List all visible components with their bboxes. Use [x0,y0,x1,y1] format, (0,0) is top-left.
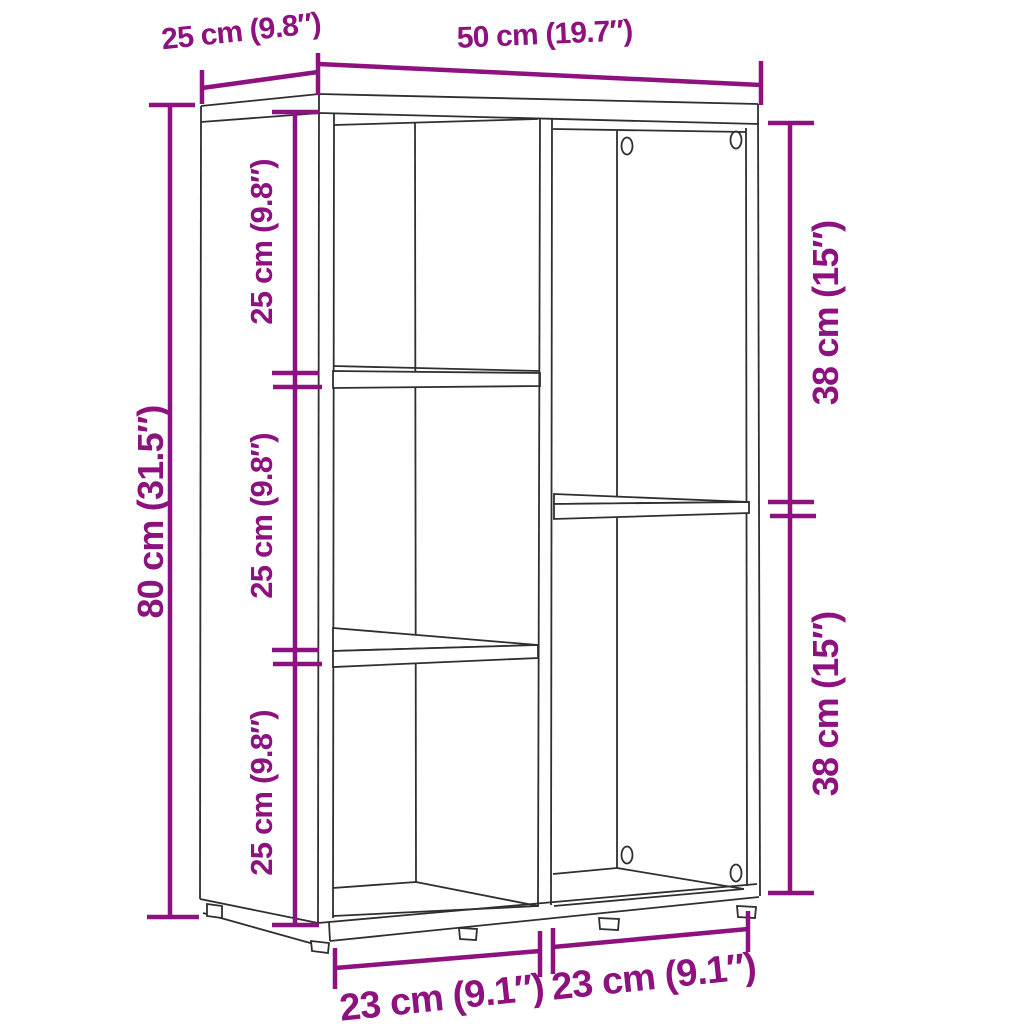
cabinet-drawing [200,94,760,953]
left-stile-inner-edge [333,114,334,918]
cam-hole [622,847,633,864]
foot [599,918,619,930]
bottom-width-label-right: 23 cm (9.1″) [550,945,758,1008]
front-right-vertical [758,104,760,896]
top-band-left [201,113,320,122]
right-section-label-2: 38 cm (15″) [805,612,846,797]
cam-hole [731,132,742,149]
bottom-corner-closure [329,922,330,941]
left-section-label-1: 25 cm (9.8″) [244,159,279,325]
width-dimension: 50 cm (19.7″) [318,14,761,105]
depth-label: 25 cm (9.8″) [160,7,322,57]
top-front-edge [319,94,758,104]
left-section-label-3: 25 cm (9.8″) [244,710,279,876]
foot [207,904,222,918]
foot [311,941,329,953]
depth-dimension: 25 cm (9.8″) [160,7,322,104]
right-wall-bottom-edge [553,868,617,874]
right-shelf [554,494,749,519]
right-section-label-1: 38 cm (15″) [805,221,846,406]
left-sections-dimension: 25 cm (9.8″) 25 cm (9.8″) 25 cm (9.8″) [244,112,322,925]
shelf-front-band [554,502,749,519]
divider-right-edge [551,119,552,905]
right-sections-dimension: 38 cm (15″) 38 cm (15″) [768,123,846,893]
foot [459,928,477,940]
right-floor-back-edge [617,868,744,889]
left-floor-front-edge [333,906,538,916]
dimension-line [335,951,540,968]
width-label: 50 cm (19.7″) [456,14,633,55]
shelf-top-sliver [333,366,540,371]
dimension-diagram-page: 25 cm (9.8″) 50 cm (19.7″) 80 cm (31.5″)… [0,0,1024,1024]
bottom-widths-dimension: 23 cm (9.1″) 23 cm (9.1″) [335,911,758,1024]
top-left-edge [201,94,319,106]
right-ceiling-back-edge [553,129,746,132]
dimension-line [202,72,318,88]
left-back-corner-vertical [415,123,416,883]
divider-left-edge [538,118,540,907]
cam-hole [622,138,633,155]
left-column-interior [333,114,538,918]
center-divider [538,118,552,907]
height-dimension: 80 cm (31.5″) [130,105,199,917]
left-wall-bottom-edge [333,882,416,888]
dimension-annotations: 25 cm (9.8″) 50 cm (19.7″) 80 cm (31.5″)… [130,7,846,1024]
dimension-diagram: 25 cm (9.8″) 50 cm (19.7″) 80 cm (31.5″)… [0,0,1024,1024]
dimension-line [318,64,761,85]
left-shelf-1 [333,366,540,388]
left-section-label-2: 25 cm (9.8″) [244,433,279,599]
front-left-vertical [318,94,319,923]
left-floor-back-edge [416,882,538,906]
left-shelf-2 [333,628,538,667]
dimension-line [553,929,748,947]
cabinet-feet [207,904,756,953]
cabinet-outline [200,94,760,946]
bottom-width-label-left: 23 cm (9.1″) [338,966,546,1024]
shelf-front-band [333,371,540,388]
cam-hole [731,865,742,882]
right-floor-front-edge [554,889,744,906]
height-label: 80 cm (31.5″) [130,406,171,619]
left-ceiling-back-edge [334,119,538,125]
back-left-vertical [200,106,201,899]
